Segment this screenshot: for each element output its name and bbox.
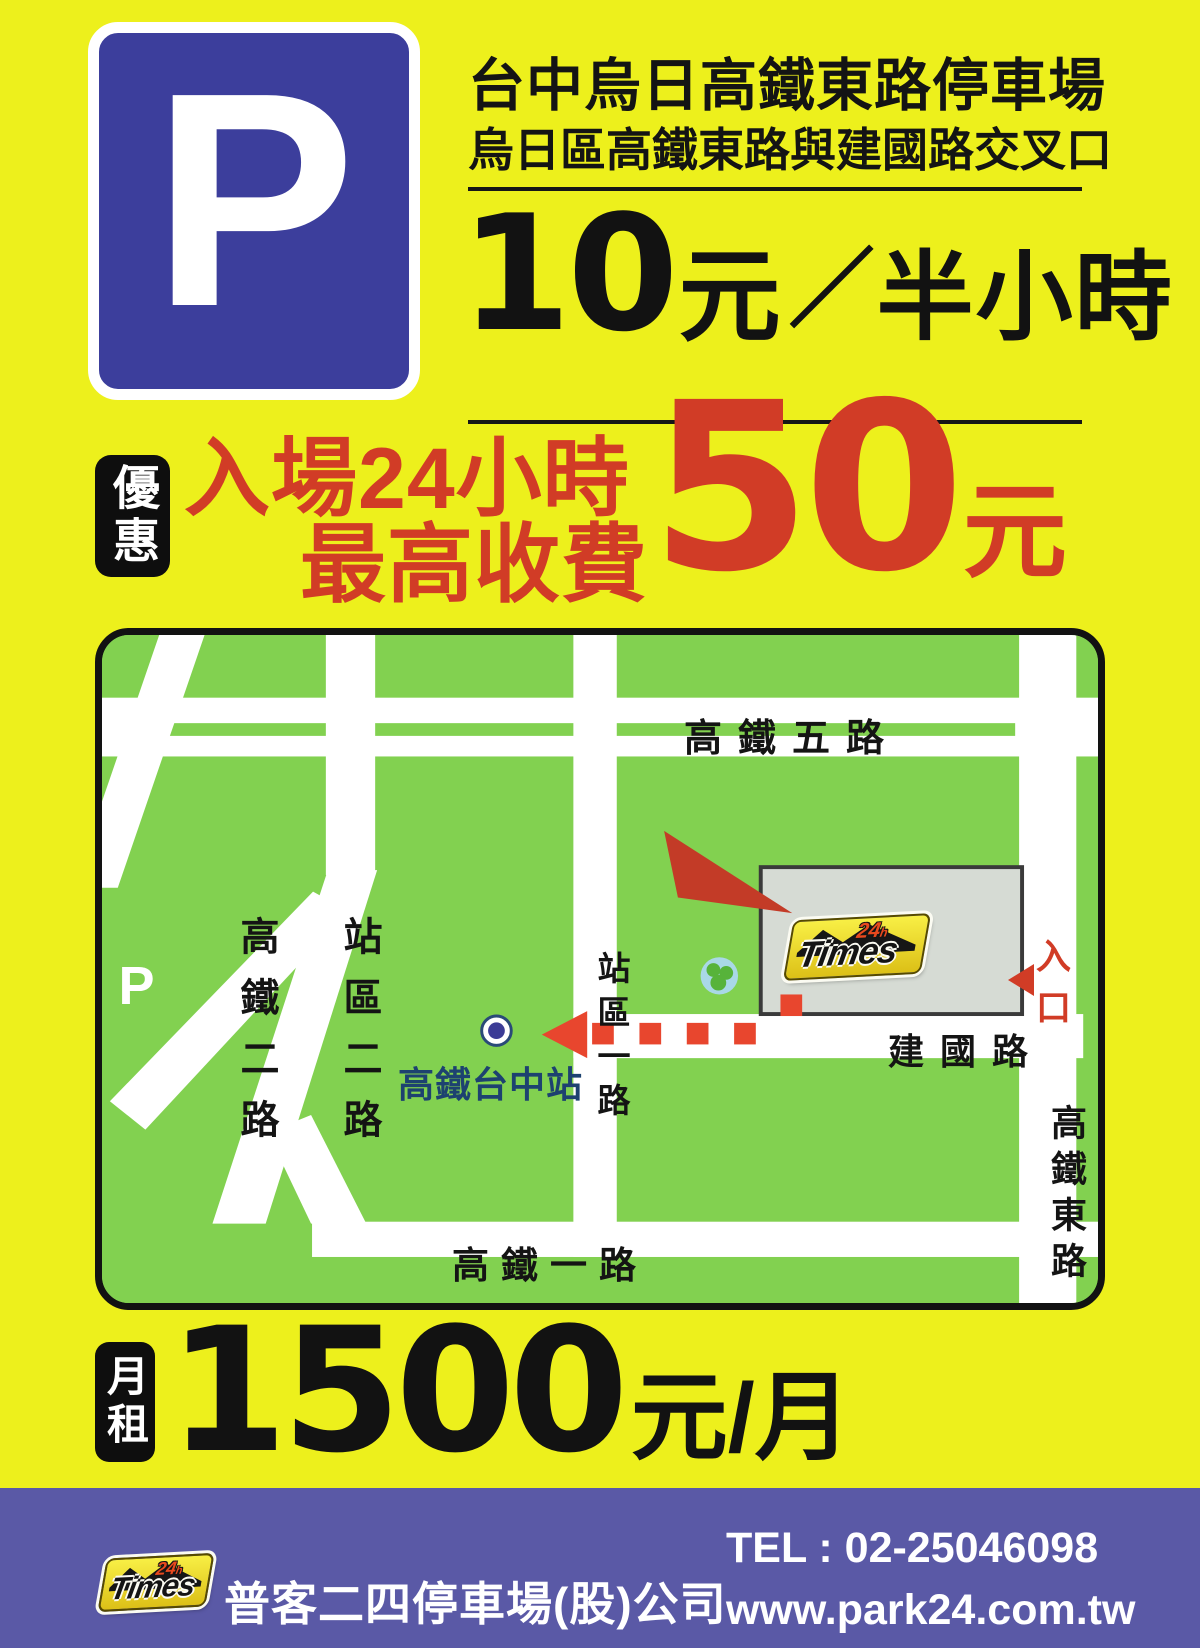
rate-unit: 元	[679, 256, 781, 340]
promo-badge: 優惠	[95, 455, 170, 577]
road-label-zhanqu2: 站區二路	[331, 916, 387, 1160]
page-title: 台中烏日高鐵東路停車場	[468, 40, 1106, 122]
road-label-gaotie-east: 高鐵東路	[1040, 1104, 1092, 1288]
times-logo: 24h Times	[783, 913, 932, 981]
road-label-gaotie2: 高鐵二路	[228, 916, 284, 1160]
entrance-arrow-icon	[1008, 964, 1034, 996]
hsr-station-label: 高鐵台中站	[398, 1056, 583, 1108]
location-subtitle: 烏日區高鐵東路與建國路交叉口	[468, 114, 1112, 180]
company-name: 普客二四停車場(股)公司	[224, 1568, 727, 1634]
monthly-badge-label: 月租	[95, 1354, 156, 1450]
rate-slash: ／	[789, 252, 875, 329]
road-label-gaotie1: 高鐵一路	[452, 1235, 648, 1289]
promo-price: 50 元	[650, 398, 1067, 579]
hourly-rate: 10 元 ／ 半小時	[460, 208, 1174, 339]
phone-number: TEL : 02-25046098	[726, 1524, 1098, 1573]
road-label-gaotie5: 高鐵五路	[684, 707, 900, 762]
parking-sign: P	[88, 22, 420, 400]
footer-times-name-label: Times	[107, 1567, 197, 1608]
promo-line1: 入場24小時	[184, 436, 648, 522]
monthly-unit: 元/月	[631, 1378, 852, 1458]
parking-p-icon: P	[152, 47, 355, 352]
rate-period: 半小時	[877, 257, 1174, 339]
location-map: 高鐵五路 高鐵二路 站區二路 站區一路 高鐵東路 建國路 高鐵一路 高鐵台中站 …	[95, 628, 1105, 1310]
monthly-amount: 1500	[168, 1322, 623, 1460]
website-url: www.park24.com.tw	[726, 1586, 1135, 1635]
monthly-rate: 1500 元/月	[168, 1322, 852, 1460]
road-label-zhanqu1: 站區一路	[587, 951, 635, 1127]
times-name-label: Times	[795, 928, 901, 976]
promo-price-amount: 50	[650, 398, 957, 579]
rate-amount: 10	[460, 208, 675, 339]
entrance-marker: 入口	[1008, 929, 1098, 1031]
flyer-page: P 台中烏日高鐵東路停車場 烏日區高鐵東路與建國路交叉口 10 元 ／ 半小時 …	[0, 0, 1200, 1648]
monthly-badge: 月租	[95, 1342, 155, 1462]
footer-times-logo: 24h Times	[97, 1553, 214, 1612]
promo-price-unit: 元	[963, 492, 1067, 575]
map-parking-p-icon: P	[118, 955, 154, 1017]
promo-text: 入場24小時 最高收費	[184, 436, 648, 608]
entrance-label: 入口	[1036, 929, 1098, 1031]
promo-line2: 最高收費	[184, 522, 648, 608]
promo-badge-label: 優惠	[98, 463, 167, 569]
